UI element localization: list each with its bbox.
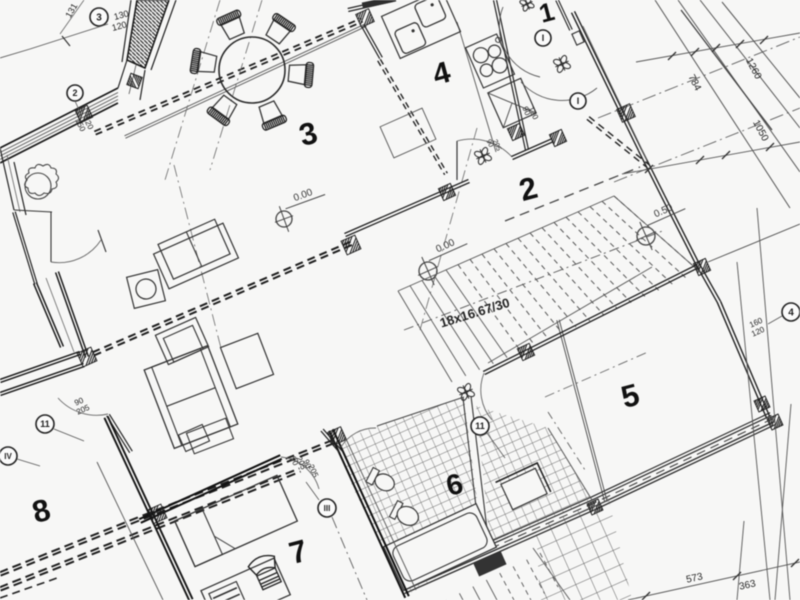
svg-text:III: III	[324, 504, 331, 513]
svg-text:11: 11	[40, 419, 50, 429]
svg-text:3: 3	[96, 13, 102, 24]
svg-text:I: I	[542, 33, 545, 43]
svg-text:4: 4	[788, 308, 794, 319]
svg-text:11: 11	[475, 421, 485, 431]
svg-text:I: I	[577, 96, 580, 106]
svg-text:IV: IV	[4, 452, 12, 461]
svg-text:2: 2	[72, 88, 77, 98]
